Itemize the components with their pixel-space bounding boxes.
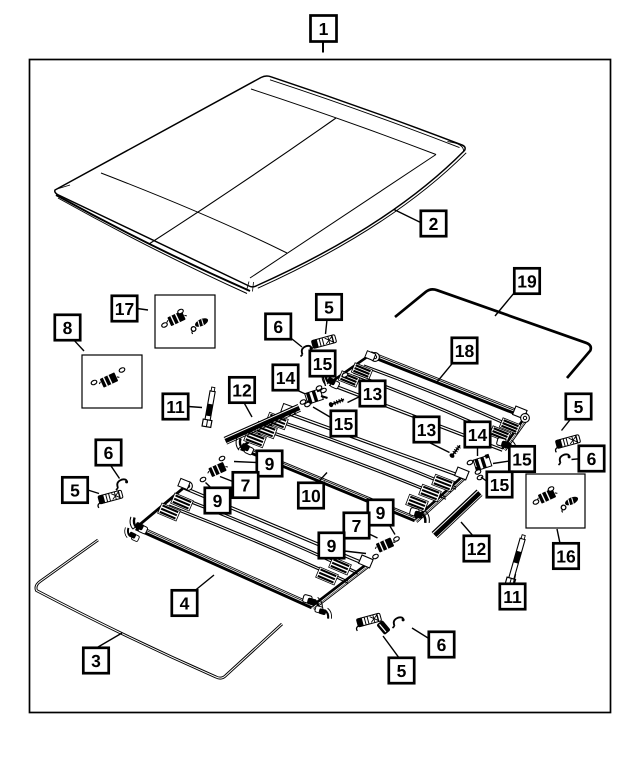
- svg-text:6: 6: [437, 635, 447, 655]
- svg-text:19: 19: [517, 271, 537, 291]
- svg-text:15: 15: [490, 475, 510, 495]
- svg-text:6: 6: [273, 317, 283, 337]
- svg-text:15: 15: [512, 449, 532, 469]
- svg-text:10: 10: [301, 486, 321, 506]
- svg-text:15: 15: [334, 414, 354, 434]
- svg-text:13: 13: [363, 384, 383, 404]
- svg-text:11: 11: [166, 397, 185, 417]
- svg-text:3: 3: [91, 651, 101, 671]
- svg-text:1: 1: [319, 19, 329, 39]
- svg-text:14: 14: [276, 368, 296, 388]
- svg-text:5: 5: [70, 480, 80, 500]
- svg-text:4: 4: [180, 593, 190, 613]
- svg-text:6: 6: [104, 443, 114, 463]
- svg-text:9: 9: [327, 536, 337, 556]
- svg-text:18: 18: [455, 341, 475, 361]
- svg-text:7: 7: [241, 475, 251, 495]
- svg-text:13: 13: [417, 420, 437, 440]
- svg-text:9: 9: [376, 503, 386, 523]
- svg-text:5: 5: [324, 297, 334, 317]
- svg-text:6: 6: [587, 449, 597, 469]
- svg-text:15: 15: [313, 354, 333, 374]
- svg-text:16: 16: [556, 546, 576, 566]
- svg-text:9: 9: [213, 491, 223, 511]
- svg-text:11: 11: [503, 587, 522, 607]
- svg-text:8: 8: [63, 318, 73, 338]
- svg-text:14: 14: [468, 425, 488, 445]
- svg-text:17: 17: [115, 299, 134, 319]
- svg-text:2: 2: [429, 214, 439, 234]
- svg-text:9: 9: [265, 454, 275, 474]
- svg-text:7: 7: [352, 516, 362, 536]
- svg-text:12: 12: [467, 539, 487, 559]
- svg-text:5: 5: [574, 397, 584, 417]
- svg-text:12: 12: [232, 380, 252, 400]
- svg-text:5: 5: [397, 661, 407, 681]
